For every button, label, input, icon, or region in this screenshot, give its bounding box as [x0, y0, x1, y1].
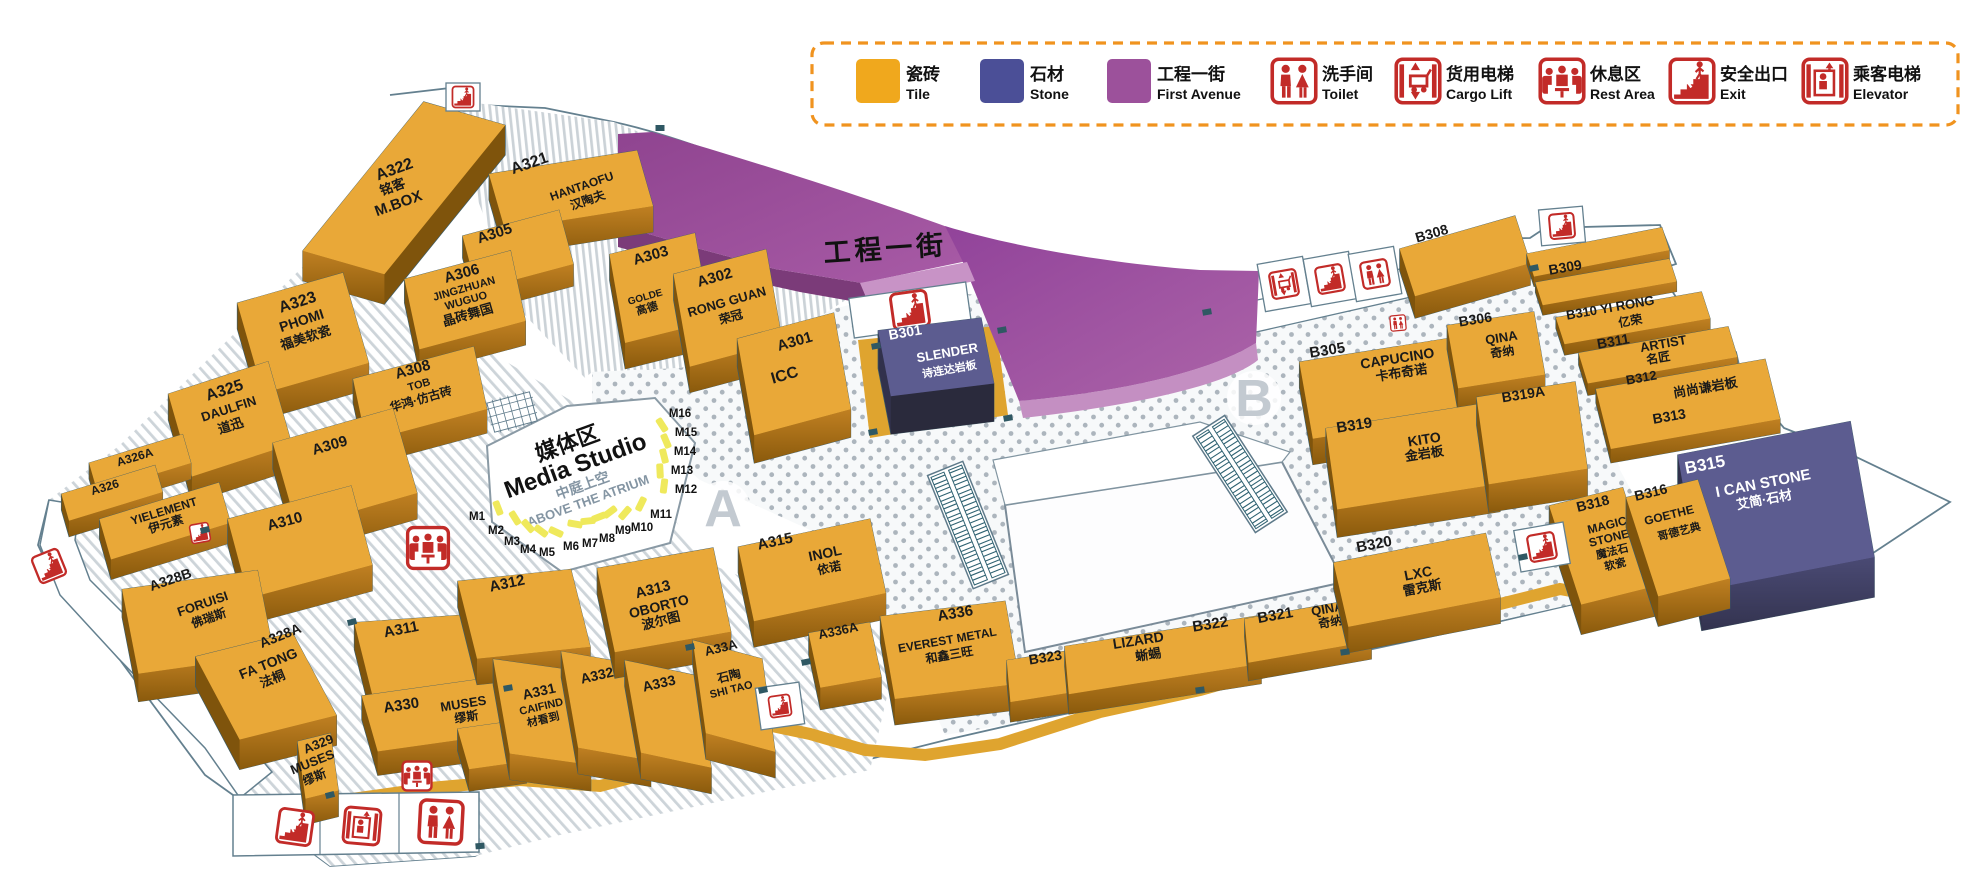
- svg-text:M10: M10: [631, 522, 653, 534]
- svg-text:M12: M12: [675, 484, 697, 496]
- svg-text:Toilet: Toilet: [1322, 86, 1359, 102]
- svg-text:休息区: 休息区: [1589, 64, 1641, 84]
- svg-text:瓷砖: 瓷砖: [906, 64, 940, 84]
- svg-text:Elevator: Elevator: [1853, 86, 1909, 102]
- svg-text:M2: M2: [488, 525, 504, 537]
- svg-text:M1: M1: [469, 511, 486, 523]
- svg-text:乘客电梯: 乘客电梯: [1852, 64, 1921, 84]
- svg-text:洗手间: 洗手间: [1322, 64, 1373, 84]
- svg-text:货用电梯: 货用电梯: [1446, 64, 1514, 84]
- svg-text:M6: M6: [563, 541, 579, 553]
- svg-text:Stone: Stone: [1030, 86, 1069, 102]
- svg-text:Rest Area: Rest Area: [1590, 86, 1655, 102]
- svg-text:Cargo Lift: Cargo Lift: [1446, 86, 1512, 102]
- svg-text:B: B: [1235, 370, 1273, 428]
- svg-text:工程一街: 工程一街: [1157, 64, 1225, 84]
- svg-text:M11: M11: [650, 509, 672, 521]
- svg-text:M7: M7: [582, 538, 598, 550]
- svg-text:M16: M16: [669, 408, 691, 420]
- svg-text:Tile: Tile: [906, 86, 930, 102]
- svg-text:Exit: Exit: [1720, 86, 1746, 102]
- svg-text:石材: 石材: [1029, 64, 1064, 84]
- svg-text:M3: M3: [504, 536, 520, 548]
- svg-text:M9: M9: [615, 525, 631, 537]
- svg-text:M14: M14: [674, 446, 697, 458]
- svg-text:M4: M4: [520, 544, 537, 556]
- svg-text:安全出口: 安全出口: [1720, 64, 1788, 84]
- svg-text:M5: M5: [539, 547, 556, 559]
- svg-text:First Avenue: First Avenue: [1157, 86, 1241, 102]
- svg-text:M13: M13: [671, 465, 693, 477]
- svg-text:M15: M15: [675, 427, 698, 439]
- svg-text:M8: M8: [599, 533, 616, 545]
- svg-text:A: A: [704, 480, 742, 538]
